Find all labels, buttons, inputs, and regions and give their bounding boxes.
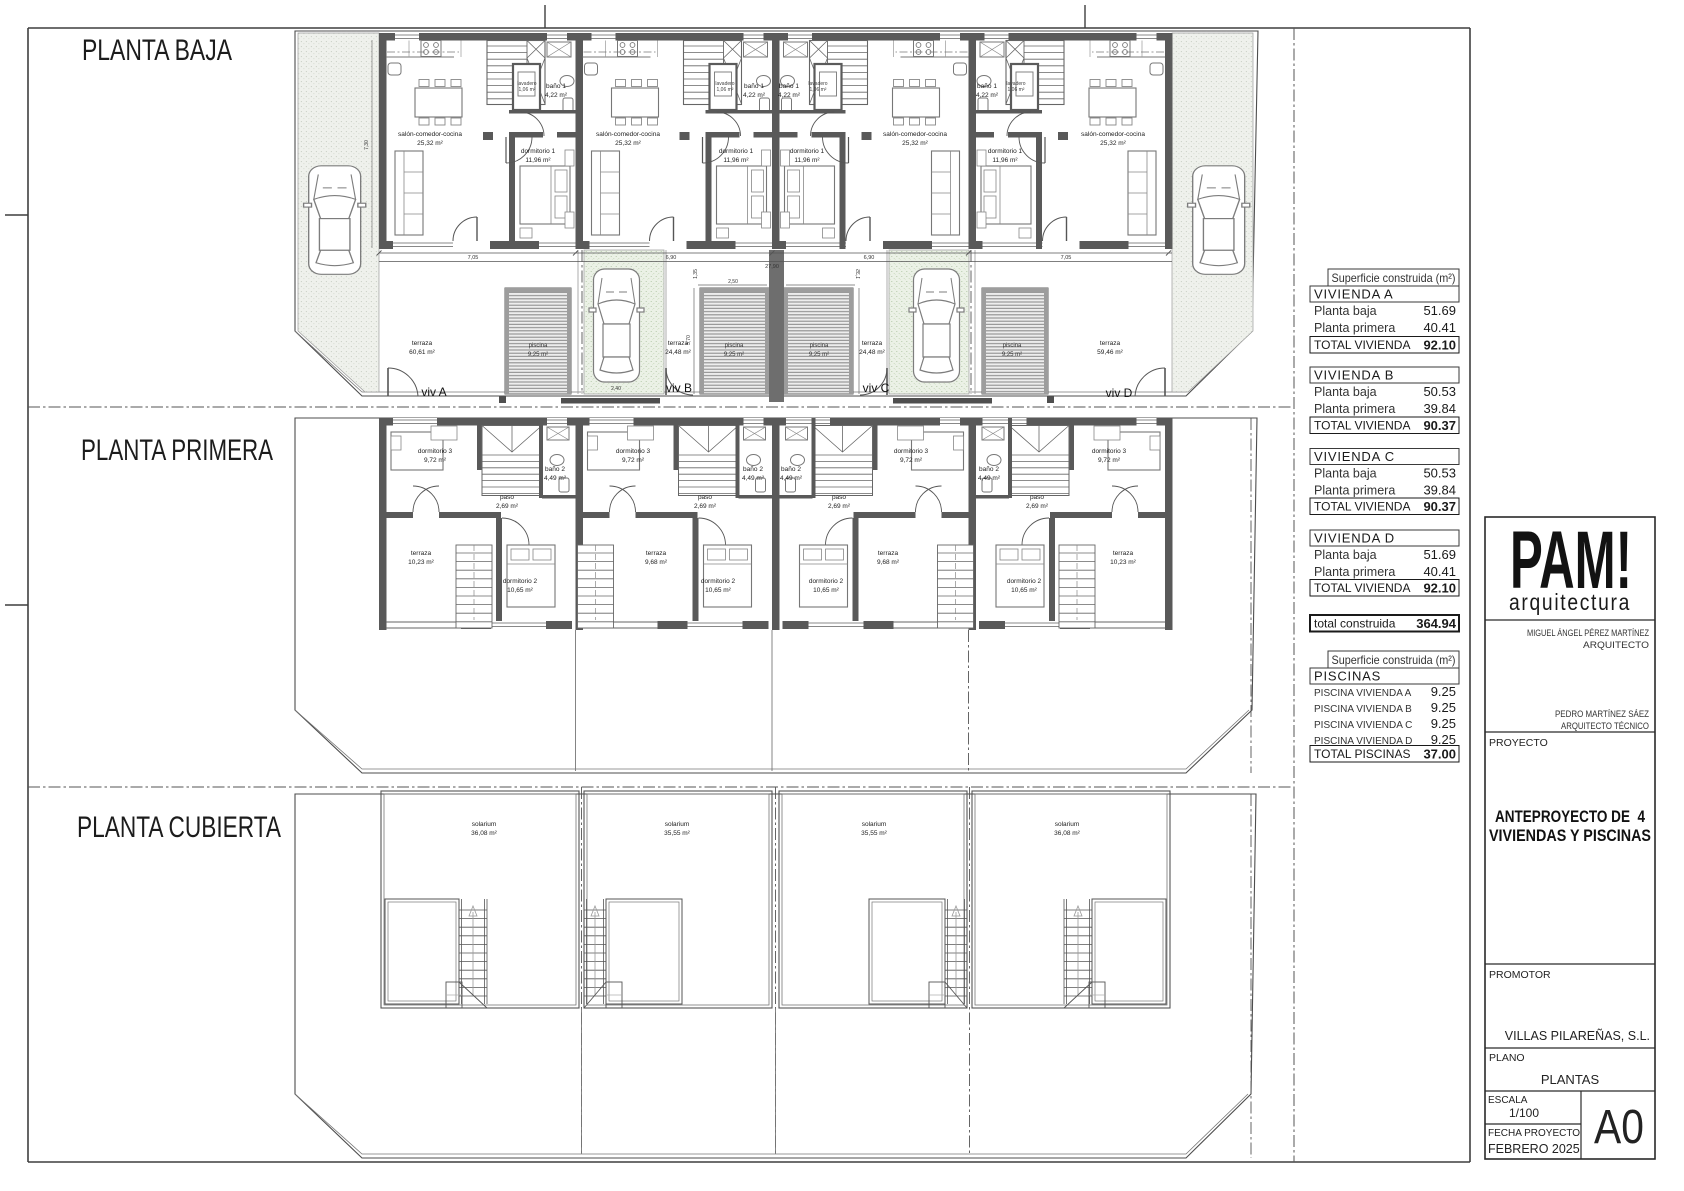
svg-text:TOTAL VIVIENDA: TOTAL VIVIENDA: [1314, 419, 1410, 433]
svg-text:Planta baja: Planta baja: [1314, 548, 1377, 562]
svg-text:FECHA PROYECTO: FECHA PROYECTO: [1488, 1128, 1580, 1139]
svg-text:PISCINAS: PISCINAS: [1314, 669, 1381, 684]
svg-text:92.10: 92.10: [1423, 338, 1456, 353]
svg-text:PISCINA VIVIENDA A: PISCINA VIVIENDA A: [1314, 688, 1412, 699]
svg-text:Planta baja: Planta baja: [1314, 467, 1377, 481]
svg-text:10,65 m²: 10,65 m²: [507, 587, 533, 594]
svg-text:1,06 m²: 1,06 m²: [717, 87, 734, 93]
svg-text:2,40: 2,40: [611, 386, 621, 392]
svg-text:paso: paso: [1030, 494, 1044, 501]
svg-text:TOTAL VIVIENDA: TOTAL VIVIENDA: [1314, 338, 1410, 352]
svg-text:4,49 m²: 4,49 m²: [780, 475, 803, 482]
svg-text:1,06 m²: 1,06 m²: [810, 87, 827, 93]
svg-text:ANTEPROYECTO DE 4: ANTEPROYECTO DE 4: [1495, 808, 1646, 826]
svg-text:PEDRO MARTÍNEZ SÁEZ: PEDRO MARTÍNEZ SÁEZ: [1555, 709, 1649, 719]
svg-text:TOTAL VIVIENDA: TOTAL VIVIENDA: [1314, 500, 1410, 514]
svg-text:25,32 m²: 25,32 m²: [615, 140, 641, 147]
svg-text:9.25: 9.25: [1431, 716, 1456, 731]
svg-text:baño 1: baño 1: [779, 83, 799, 90]
svg-text:9,25 m²: 9,25 m²: [528, 352, 548, 358]
svg-text:salón-comedor-cocina: salón-comedor-cocina: [1081, 131, 1145, 138]
svg-text:25,32 m²: 25,32 m²: [417, 140, 443, 147]
svg-text:10,65 m²: 10,65 m²: [813, 587, 839, 594]
svg-text:baño 1: baño 1: [977, 83, 997, 90]
svg-text:terraza: terraza: [1100, 340, 1121, 347]
svg-text:VIVIENDA C: VIVIENDA C: [1314, 449, 1395, 464]
svg-text:1,06 m²: 1,06 m²: [519, 87, 536, 93]
svg-text:solarium: solarium: [1055, 821, 1080, 828]
svg-text:36,08 m²: 36,08 m²: [1054, 830, 1080, 837]
svg-text:24,48 m²: 24,48 m²: [665, 349, 691, 356]
svg-text:PROMOTOR: PROMOTOR: [1489, 969, 1551, 981]
svg-text:piscina: piscina: [725, 343, 744, 349]
svg-text:TOTAL VIVIENDA: TOTAL VIVIENDA: [1314, 581, 1410, 595]
svg-text:9,68 m²: 9,68 m²: [645, 559, 668, 566]
svg-text:9,72 m²: 9,72 m²: [1098, 457, 1121, 464]
svg-text:viv B: viv B: [666, 381, 692, 395]
svg-text:VIVIENDA B: VIVIENDA B: [1314, 368, 1394, 383]
svg-text:2,69 m²: 2,69 m²: [694, 503, 717, 510]
svg-text:9,72 m²: 9,72 m²: [900, 457, 923, 464]
svg-text:baño 2: baño 2: [743, 466, 763, 473]
svg-text:90.37: 90.37: [1423, 499, 1456, 514]
svg-text:Superficie construida (m²): Superficie construida (m²): [1332, 653, 1456, 667]
svg-text:4,49 m²: 4,49 m²: [544, 475, 567, 482]
svg-text:9,68 m²: 9,68 m²: [877, 559, 900, 566]
svg-text:VIVIENDAS Y PISCINAS: VIVIENDAS Y PISCINAS: [1489, 827, 1651, 845]
svg-text:9,72 m²: 9,72 m²: [424, 457, 447, 464]
svg-text:terraza: terraza: [411, 550, 432, 557]
svg-text:2,50: 2,50: [728, 279, 738, 285]
svg-text:Planta primera: Planta primera: [1314, 402, 1395, 416]
svg-text:PLANTA CUBIERTA: PLANTA CUBIERTA: [77, 811, 281, 844]
svg-text:PISCINA VIVIENDA C: PISCINA VIVIENDA C: [1314, 720, 1412, 731]
svg-text:3,70: 3,70: [686, 335, 692, 345]
svg-text:MIGUEL ÁNGEL PÉREZ MARTÍNEZ: MIGUEL ÁNGEL PÉREZ MARTÍNEZ: [1527, 628, 1649, 638]
svg-text:dormitorio 1: dormitorio 1: [719, 148, 754, 155]
svg-text:salón-comedor-cocina: salón-comedor-cocina: [398, 131, 462, 138]
svg-text:dormitorio 2: dormitorio 2: [1007, 578, 1042, 585]
svg-text:364.94: 364.94: [1416, 616, 1457, 631]
svg-text:piscina: piscina: [1003, 343, 1022, 349]
svg-text:11,96 m²: 11,96 m²: [992, 157, 1018, 164]
svg-text:dormitorio 1: dormitorio 1: [988, 148, 1023, 155]
svg-text:35,55 m²: 35,55 m²: [861, 830, 887, 837]
svg-text:4,22 m²: 4,22 m²: [545, 92, 568, 99]
svg-text:solarium: solarium: [665, 821, 690, 828]
svg-text:1/100: 1/100: [1509, 1106, 1539, 1120]
svg-text:salón-comedor-cocina: salón-comedor-cocina: [883, 131, 947, 138]
svg-text:paso: paso: [698, 494, 712, 501]
svg-text:VILLAS PILAREÑAS, S.L.: VILLAS PILAREÑAS, S.L.: [1505, 1029, 1650, 1043]
svg-text:51.69: 51.69: [1423, 303, 1456, 318]
svg-text:baño 1: baño 1: [744, 83, 764, 90]
svg-text:ESCALA: ESCALA: [1488, 1095, 1528, 1106]
svg-text:salón-comedor-cocina: salón-comedor-cocina: [596, 131, 660, 138]
svg-text:terraza: terraza: [1113, 550, 1134, 557]
svg-text:PLANO: PLANO: [1489, 1052, 1525, 1064]
svg-text:TOTAL PISCINAS: TOTAL PISCINAS: [1314, 747, 1410, 761]
svg-text:51.69: 51.69: [1423, 547, 1456, 562]
svg-text:7,05: 7,05: [468, 255, 479, 261]
svg-text:dormitorio 3: dormitorio 3: [894, 448, 929, 455]
svg-text:10,23 m²: 10,23 m²: [1110, 559, 1136, 566]
svg-text:4,22 m²: 4,22 m²: [743, 92, 766, 99]
svg-text:39.84: 39.84: [1423, 483, 1456, 498]
svg-text:39.84: 39.84: [1423, 401, 1456, 416]
svg-text:terraza: terraza: [646, 550, 667, 557]
svg-text:60,61 m²: 60,61 m²: [409, 349, 435, 356]
svg-text:viv C: viv C: [863, 381, 890, 395]
svg-text:dormitorio 2: dormitorio 2: [503, 578, 538, 585]
svg-text:36,08 m²: 36,08 m²: [471, 830, 497, 837]
svg-text:paso: paso: [832, 494, 846, 501]
svg-text:PISCINA VIVIENDA B: PISCINA VIVIENDA B: [1314, 704, 1412, 715]
svg-text:37.00: 37.00: [1423, 747, 1456, 762]
svg-text:11,96 m²: 11,96 m²: [723, 157, 749, 164]
svg-text:piscina: piscina: [810, 343, 829, 349]
svg-text:50.53: 50.53: [1423, 384, 1456, 399]
svg-text:4,49 m²: 4,49 m²: [742, 475, 765, 482]
svg-text:9,25 m²: 9,25 m²: [724, 352, 744, 358]
svg-text:2,69 m²: 2,69 m²: [1026, 503, 1049, 510]
svg-text:2,69 m²: 2,69 m²: [496, 503, 519, 510]
svg-text:92.10: 92.10: [1423, 581, 1456, 596]
svg-text:Planta primera: Planta primera: [1314, 484, 1395, 498]
svg-text:59,46 m²: 59,46 m²: [1097, 349, 1123, 356]
svg-text:50.53: 50.53: [1423, 466, 1456, 481]
svg-text:Planta baja: Planta baja: [1314, 304, 1377, 318]
svg-text:11,96 m²: 11,96 m²: [794, 157, 820, 164]
svg-text:dormitorio 3: dormitorio 3: [1092, 448, 1127, 455]
svg-text:paso: paso: [500, 494, 514, 501]
svg-text:baño 2: baño 2: [545, 466, 565, 473]
svg-text:solarium: solarium: [862, 821, 887, 828]
svg-text:viv D: viv D: [1106, 386, 1133, 400]
svg-text:25,32 m²: 25,32 m²: [1100, 140, 1126, 147]
svg-text:dormitorio 3: dormitorio 3: [418, 448, 453, 455]
svg-text:FEBRERO 2025: FEBRERO 2025: [1488, 1142, 1580, 1156]
svg-text:10,65 m²: 10,65 m²: [705, 587, 731, 594]
svg-text:terraza: terraza: [878, 550, 899, 557]
svg-text:24,48 m²: 24,48 m²: [859, 349, 885, 356]
svg-text:A0: A0: [1594, 1101, 1644, 1154]
svg-text:dormitorio 2: dormitorio 2: [809, 578, 844, 585]
svg-text:Planta baja: Planta baja: [1314, 385, 1377, 399]
svg-text:40.41: 40.41: [1423, 564, 1456, 579]
svg-text:total construida: total construida: [1314, 617, 1396, 631]
svg-text:25,32 m²: 25,32 m²: [902, 140, 928, 147]
svg-text:PLANTA BAJA: PLANTA BAJA: [82, 34, 232, 67]
svg-text:9.25: 9.25: [1431, 700, 1456, 715]
svg-text:1,06 m²: 1,06 m²: [1008, 87, 1025, 93]
svg-text:35,55 m²: 35,55 m²: [664, 830, 690, 837]
svg-text:terraza: terraza: [862, 340, 883, 347]
svg-text:10,23 m²: 10,23 m²: [408, 559, 434, 566]
svg-text:9.25: 9.25: [1431, 684, 1456, 699]
svg-text:solarium: solarium: [472, 821, 497, 828]
svg-text:ARQUITECTO TÉCNICO: ARQUITECTO TÉCNICO: [1561, 721, 1649, 731]
svg-text:Planta primera: Planta primera: [1314, 321, 1395, 335]
svg-text:Planta primera: Planta primera: [1314, 565, 1395, 579]
svg-text:9,72 m²: 9,72 m²: [622, 457, 645, 464]
svg-text:Superficie construida (m²): Superficie construida (m²): [1332, 271, 1456, 285]
svg-text:7,30: 7,30: [364, 140, 370, 150]
svg-text:4,22 m²: 4,22 m²: [778, 92, 801, 99]
svg-text:90.37: 90.37: [1423, 418, 1456, 433]
svg-text:9,25 m²: 9,25 m²: [809, 352, 829, 358]
svg-text:9,25 m²: 9,25 m²: [1002, 352, 1022, 358]
svg-text:27,90: 27,90: [765, 264, 779, 270]
svg-text:7,05: 7,05: [1061, 255, 1072, 261]
svg-text:PLANTAS: PLANTAS: [1541, 1072, 1600, 1087]
svg-text:dormitorio 1: dormitorio 1: [790, 148, 825, 155]
svg-text:10,65 m²: 10,65 m²: [1011, 587, 1037, 594]
svg-text:4,22 m²: 4,22 m²: [976, 92, 999, 99]
svg-text:dormitorio 1: dormitorio 1: [521, 148, 556, 155]
svg-text:PROYECTO: PROYECTO: [1489, 737, 1548, 749]
svg-text:dormitorio 2: dormitorio 2: [701, 578, 736, 585]
svg-text:6,90: 6,90: [864, 255, 875, 261]
svg-text:9.25: 9.25: [1431, 732, 1456, 747]
svg-text:40.41: 40.41: [1423, 320, 1456, 335]
svg-text:6,90: 6,90: [666, 255, 677, 261]
svg-text:ARQUITECTO: ARQUITECTO: [1583, 640, 1649, 650]
svg-text:terraza: terraza: [412, 340, 433, 347]
svg-text:1,35: 1,35: [693, 269, 699, 279]
svg-text:arquitectura: arquitectura: [1509, 589, 1631, 615]
svg-text:2,69 m²: 2,69 m²: [828, 503, 851, 510]
svg-text:piscina: piscina: [529, 343, 548, 349]
svg-text:PLANTA PRIMERA: PLANTA PRIMERA: [81, 434, 273, 467]
svg-text:4,49 m²: 4,49 m²: [978, 475, 1001, 482]
svg-text:baño 2: baño 2: [781, 466, 801, 473]
svg-text:baño 2: baño 2: [979, 466, 999, 473]
svg-text:11,96 m²: 11,96 m²: [525, 157, 551, 164]
svg-text:viv A: viv A: [421, 385, 446, 399]
svg-text:baño 1: baño 1: [546, 83, 566, 90]
svg-text:VIVIENDA A: VIVIENDA A: [1314, 287, 1394, 302]
svg-text:dormitorio 3: dormitorio 3: [616, 448, 651, 455]
svg-text:VIVIENDA D: VIVIENDA D: [1314, 531, 1395, 546]
